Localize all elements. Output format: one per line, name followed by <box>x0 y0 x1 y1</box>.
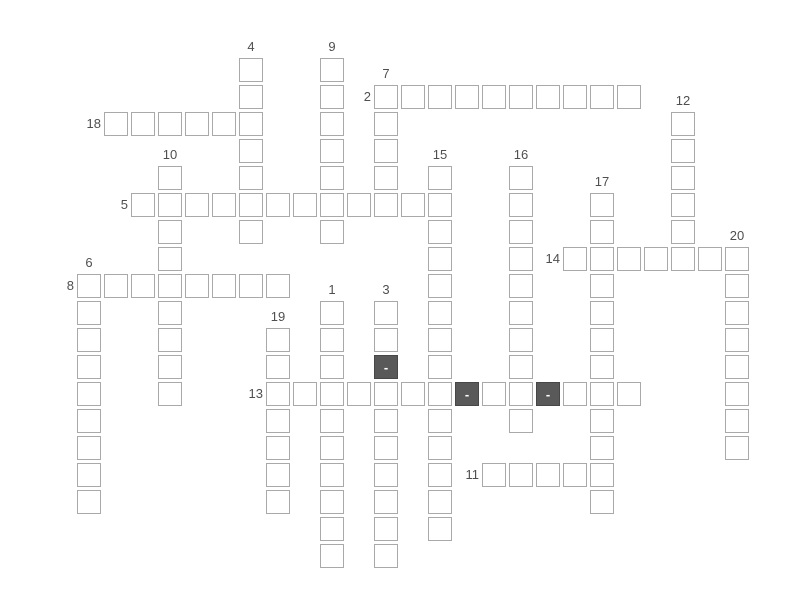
crossword-cell[interactable] <box>347 193 371 217</box>
crossword-cell[interactable] <box>266 274 290 298</box>
crossword-cell[interactable] <box>428 247 452 271</box>
crossword-cell[interactable] <box>320 58 344 82</box>
crossword-cell[interactable] <box>617 382 641 406</box>
crossword-cell[interactable] <box>77 409 101 433</box>
crossword-cell[interactable] <box>374 166 398 190</box>
crossword-cell[interactable] <box>239 274 263 298</box>
crossword-cell[interactable] <box>320 166 344 190</box>
crossword-cell[interactable] <box>590 490 614 514</box>
crossword-cell[interactable] <box>590 247 614 271</box>
crossword-cell[interactable] <box>428 409 452 433</box>
crossword-cell[interactable] <box>158 301 182 325</box>
crossword-cell[interactable] <box>590 301 614 325</box>
crossword-cell[interactable] <box>158 247 182 271</box>
crossword-cell[interactable] <box>212 193 236 217</box>
crossword-cell[interactable] <box>428 436 452 460</box>
crossword-cell[interactable] <box>455 85 479 109</box>
crossword-cell[interactable] <box>185 274 209 298</box>
crossword-cell[interactable] <box>77 328 101 352</box>
clue-number-12: 12 <box>671 93 695 109</box>
crossword-cell[interactable] <box>158 220 182 244</box>
crossword-cell[interactable] <box>320 355 344 379</box>
crossword-cell[interactable] <box>266 193 290 217</box>
crossword-cell[interactable] <box>239 139 263 163</box>
clue-number-4: 4 <box>239 39 263 55</box>
clue-number-3: 3 <box>374 282 398 298</box>
crossword-cell[interactable] <box>374 490 398 514</box>
crossword-cell[interactable] <box>563 382 587 406</box>
crossword-cell[interactable] <box>563 463 587 487</box>
crossword-cell[interactable] <box>428 490 452 514</box>
crossword-cell[interactable] <box>185 193 209 217</box>
crossword-cell[interactable] <box>617 85 641 109</box>
crossword-cell[interactable] <box>131 193 155 217</box>
clue-number-7: 7 <box>374 66 398 82</box>
crossword-cell[interactable] <box>428 463 452 487</box>
crossword-cell[interactable] <box>671 166 695 190</box>
crossword-cell[interactable] <box>239 85 263 109</box>
crossword-cell[interactable] <box>239 220 263 244</box>
crossword-cell[interactable] <box>590 328 614 352</box>
clue-number-16: 16 <box>509 147 533 163</box>
crossword-cell[interactable] <box>671 247 695 271</box>
crossword-cell[interactable] <box>320 436 344 460</box>
crossword-cell[interactable] <box>131 274 155 298</box>
clue-number-2: 2 <box>344 89 371 105</box>
crossword-cell[interactable] <box>266 355 290 379</box>
crossword-cell[interactable] <box>374 328 398 352</box>
crossword-cell[interactable] <box>563 85 587 109</box>
crossword-cell[interactable] <box>374 193 398 217</box>
crossword-cell[interactable] <box>617 247 641 271</box>
crossword-cell[interactable] <box>374 139 398 163</box>
crossword-cell[interactable] <box>401 382 425 406</box>
clue-number-11: 11 <box>452 467 479 483</box>
crossword-cell[interactable] <box>671 112 695 136</box>
crossword-cell[interactable] <box>266 409 290 433</box>
crossword-cell[interactable] <box>563 247 587 271</box>
crossword-cell[interactable] <box>536 85 560 109</box>
crossword-cell[interactable] <box>509 193 533 217</box>
crossword-cell[interactable] <box>158 328 182 352</box>
crossword-cell[interactable] <box>266 463 290 487</box>
crossword-cell[interactable] <box>320 328 344 352</box>
crossword-cell[interactable] <box>266 328 290 352</box>
crossword-cell[interactable] <box>428 517 452 541</box>
crossword-cell[interactable] <box>509 409 533 433</box>
crossword-cell[interactable] <box>158 355 182 379</box>
crossword-cell[interactable] <box>590 355 614 379</box>
crossword-cell[interactable] <box>509 247 533 271</box>
crossword-cell[interactable] <box>77 274 101 298</box>
crossword-cell[interactable] <box>428 220 452 244</box>
crossword-cell[interactable] <box>239 193 263 217</box>
crossword-cell[interactable] <box>482 382 506 406</box>
clue-number-14: 14 <box>533 251 560 267</box>
crossword-cell[interactable] <box>320 517 344 541</box>
crossword-cell[interactable] <box>725 436 749 460</box>
crossword-cell[interactable] <box>725 355 749 379</box>
crossword-cell[interactable] <box>77 463 101 487</box>
crossword-cell[interactable] <box>428 166 452 190</box>
crossword-cell[interactable] <box>509 166 533 190</box>
filled-dash-cell: - <box>374 355 398 379</box>
crossword-cell[interactable] <box>239 112 263 136</box>
clue-number-6: 6 <box>77 255 101 271</box>
crossword-cell[interactable] <box>482 463 506 487</box>
crossword-cell[interactable] <box>536 463 560 487</box>
crossword-cell[interactable] <box>482 85 506 109</box>
crossword-cell[interactable] <box>509 274 533 298</box>
crossword-cell[interactable] <box>266 490 290 514</box>
crossword-cell[interactable] <box>725 382 749 406</box>
crossword-cell[interactable] <box>239 58 263 82</box>
clue-number-9: 9 <box>320 39 344 55</box>
crossword-cell[interactable] <box>320 85 344 109</box>
crossword-cell[interactable] <box>320 463 344 487</box>
crossword-cell[interactable] <box>374 301 398 325</box>
crossword-cell[interactable] <box>590 409 614 433</box>
crossword-cell[interactable] <box>374 112 398 136</box>
crossword-cell[interactable] <box>590 193 614 217</box>
crossword-cell[interactable] <box>698 247 722 271</box>
clue-number-5: 5 <box>101 197 128 213</box>
crossword-cell[interactable] <box>671 193 695 217</box>
crossword-cell[interactable] <box>266 382 290 406</box>
crossword-cell[interactable] <box>644 247 668 271</box>
crossword-cell[interactable] <box>320 490 344 514</box>
crossword-cell[interactable] <box>725 274 749 298</box>
crossword-cell[interactable] <box>293 193 317 217</box>
crossword-cell[interactable] <box>428 193 452 217</box>
crossword-cell[interactable] <box>293 382 317 406</box>
crossword-cell[interactable] <box>590 463 614 487</box>
crossword-cell[interactable] <box>428 328 452 352</box>
crossword-cell[interactable] <box>77 382 101 406</box>
crossword-cell[interactable] <box>671 220 695 244</box>
crossword-cell[interactable] <box>374 409 398 433</box>
crossword-cell[interactable] <box>509 355 533 379</box>
crossword-cell[interactable] <box>428 274 452 298</box>
crossword-cell[interactable] <box>509 382 533 406</box>
crossword-cell[interactable] <box>77 355 101 379</box>
crossword-cell[interactable] <box>725 247 749 271</box>
clue-number-8: 8 <box>47 278 74 294</box>
crossword-cell[interactable] <box>509 85 533 109</box>
crossword-cell[interactable] <box>428 355 452 379</box>
crossword-cell[interactable] <box>320 193 344 217</box>
crossword-cell[interactable] <box>725 301 749 325</box>
clue-number-20: 20 <box>725 228 749 244</box>
crossword-cell[interactable] <box>374 382 398 406</box>
crossword-cell[interactable] <box>509 220 533 244</box>
crossword-cell[interactable] <box>320 112 344 136</box>
crossword-cell[interactable] <box>725 328 749 352</box>
crossword-cell[interactable] <box>428 85 452 109</box>
filled-dash-cell: - <box>455 382 479 406</box>
crossword-cell[interactable] <box>374 463 398 487</box>
crossword-cell[interactable] <box>266 436 290 460</box>
clue-number-15: 15 <box>428 147 452 163</box>
crossword-cell[interactable] <box>320 544 344 568</box>
crossword-cell[interactable] <box>428 301 452 325</box>
crossword-cell[interactable] <box>320 220 344 244</box>
crossword-cell[interactable] <box>77 490 101 514</box>
clue-number-10: 10 <box>158 147 182 163</box>
crossword-cell[interactable] <box>212 274 236 298</box>
filled-dash-cell: - <box>536 382 560 406</box>
crossword-cell[interactable] <box>590 274 614 298</box>
crossword-cell[interactable] <box>671 139 695 163</box>
crossword-cell[interactable] <box>725 409 749 433</box>
crossword-cell[interactable] <box>590 436 614 460</box>
crossword-cell[interactable] <box>509 328 533 352</box>
crossword-cell[interactable] <box>401 193 425 217</box>
crossword-cell[interactable] <box>320 409 344 433</box>
crossword-cell[interactable] <box>590 220 614 244</box>
crossword-cell[interactable] <box>509 301 533 325</box>
crossword-cell[interactable] <box>239 166 263 190</box>
crossword-cell[interactable] <box>77 301 101 325</box>
crossword-cell[interactable] <box>428 382 452 406</box>
crossword-cell[interactable] <box>185 112 209 136</box>
crossword-cell[interactable] <box>374 544 398 568</box>
clue-number-19: 19 <box>266 309 290 325</box>
clue-number-1: 1 <box>320 282 344 298</box>
crossword-cell[interactable] <box>320 139 344 163</box>
clue-number-13: 13 <box>236 386 263 402</box>
crossword-cell[interactable] <box>158 112 182 136</box>
crossword-cell[interactable] <box>212 112 236 136</box>
clue-number-17: 17 <box>590 174 614 190</box>
crossword-cell[interactable] <box>401 85 425 109</box>
crossword-cell[interactable] <box>104 274 128 298</box>
crossword-cell[interactable] <box>320 382 344 406</box>
crossword-cell[interactable] <box>347 382 371 406</box>
crossword-cell[interactable] <box>509 463 533 487</box>
crossword-cell[interactable] <box>131 112 155 136</box>
crossword-cell[interactable] <box>158 382 182 406</box>
crossword-cell[interactable] <box>374 436 398 460</box>
crossword-cell[interactable] <box>374 85 398 109</box>
crossword-cell[interactable] <box>590 85 614 109</box>
crossword-cell[interactable] <box>320 301 344 325</box>
crossword-cell[interactable] <box>158 166 182 190</box>
crossword-cell[interactable] <box>590 382 614 406</box>
clue-number-18: 18 <box>74 116 101 132</box>
crossword-cell[interactable] <box>158 274 182 298</box>
crossword-cell[interactable] <box>158 193 182 217</box>
crossword-cell[interactable] <box>104 112 128 136</box>
crossword-cell[interactable] <box>374 517 398 541</box>
crossword-cell[interactable] <box>77 436 101 460</box>
crossword-grid: 12-3456789101112--1314151617181920 <box>0 0 800 600</box>
